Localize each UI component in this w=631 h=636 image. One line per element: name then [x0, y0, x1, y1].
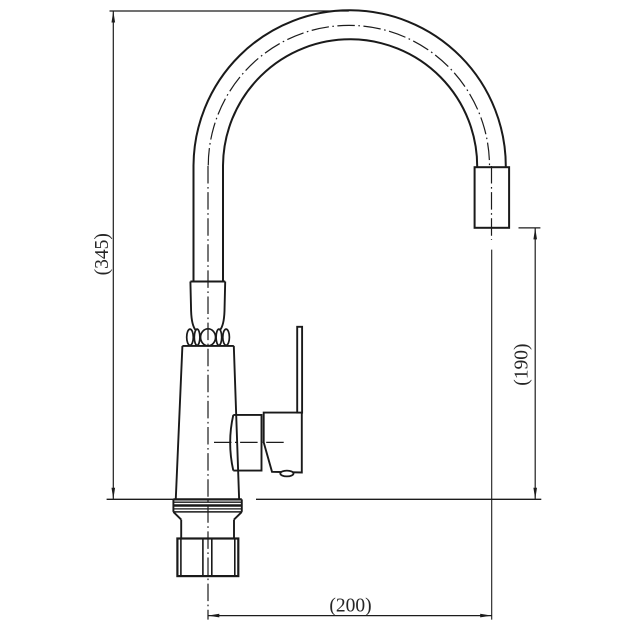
svg-text:(200): (200) [329, 595, 371, 616]
svg-text:(345): (345) [92, 233, 113, 275]
svg-text:(190): (190) [511, 343, 532, 385]
